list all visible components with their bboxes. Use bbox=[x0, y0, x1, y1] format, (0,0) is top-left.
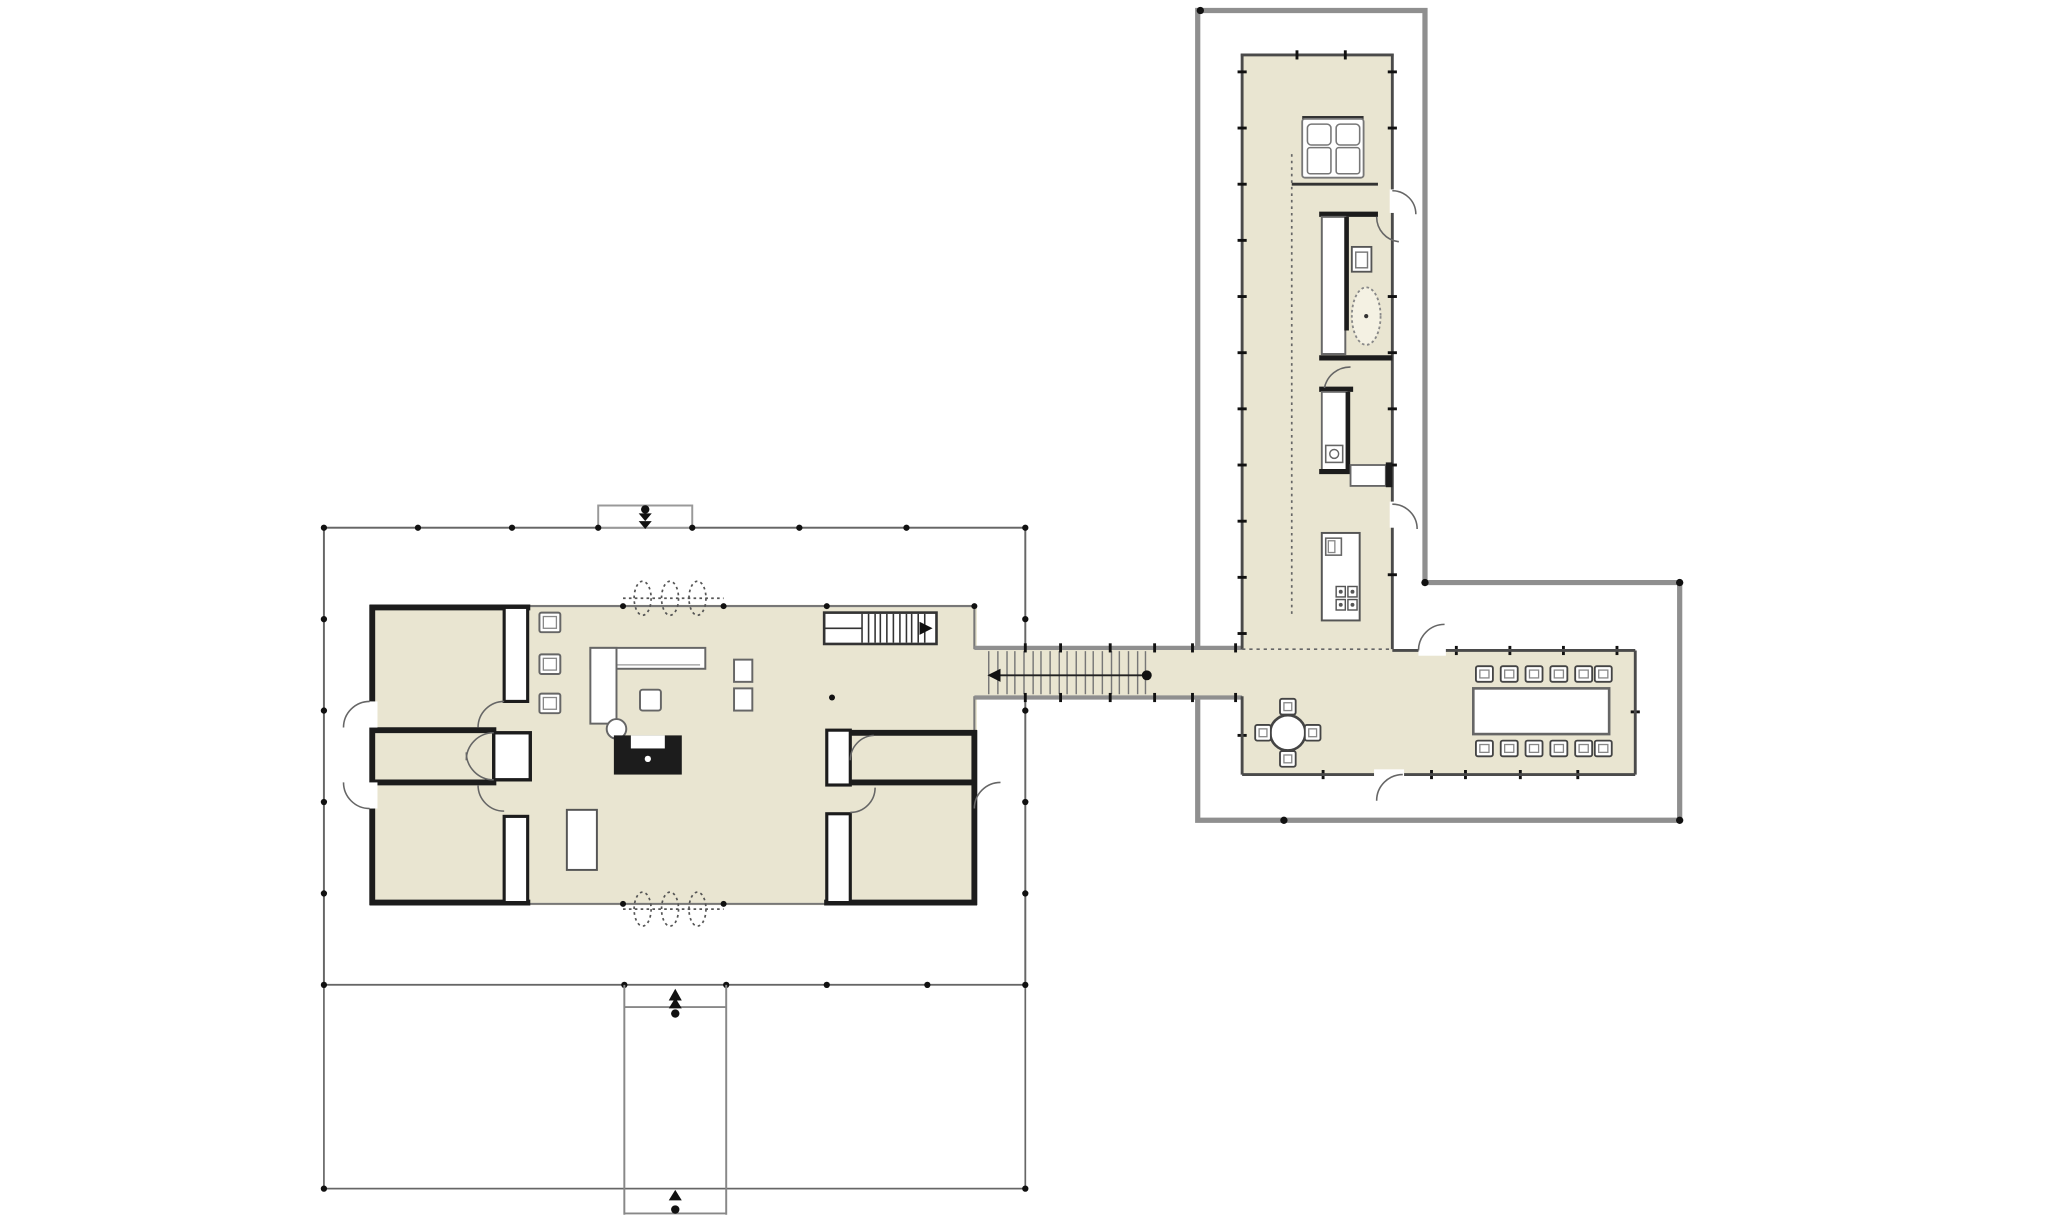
barwing-wall-ticks-v-tick bbox=[1388, 407, 1397, 410]
barwing-wall-ticks-v-tick bbox=[1388, 573, 1397, 576]
burner-dots-dot bbox=[1351, 603, 1355, 607]
door-gap-west-south bbox=[366, 782, 378, 808]
entry-dot-north bbox=[641, 505, 649, 513]
sofa-side-table bbox=[640, 690, 661, 711]
barwing-wall-ticks-v-tick bbox=[1388, 127, 1397, 130]
west-wall-seats-seat-inner bbox=[543, 698, 556, 710]
dining-chairs-north-seat-inner bbox=[1579, 670, 1588, 678]
deck-column-dots-dot bbox=[321, 890, 327, 896]
closet-strip-nw bbox=[504, 607, 528, 701]
glass-column-dots-dot bbox=[824, 603, 830, 609]
barwing-wall-ticks-v-tick bbox=[1238, 127, 1247, 130]
west-wall-seats-seat-inner bbox=[543, 658, 556, 670]
bridge-rail-ticks-tick bbox=[1109, 693, 1112, 702]
glass-column-dots-dot bbox=[620, 603, 626, 609]
deck-column-dots-dot bbox=[796, 525, 802, 531]
barwing-wall-ticks-v-tick bbox=[1238, 407, 1247, 410]
deck-column-dots-dot bbox=[1022, 799, 1028, 805]
walkway-arrow-bottom-icon bbox=[669, 1190, 682, 1200]
deck-column-dots-dot bbox=[1022, 707, 1028, 713]
barwing-wall-ticks-v-tick bbox=[1238, 183, 1247, 186]
door-gap-west-north bbox=[366, 701, 378, 727]
bridge-rail-ticks-tick bbox=[1191, 693, 1194, 702]
bridge-rail-ticks-tick bbox=[1109, 643, 1112, 652]
vestibule-block bbox=[494, 733, 531, 780]
deck-column-dots-dot bbox=[903, 525, 909, 531]
breakfast-chairs-seat-inner bbox=[1284, 703, 1292, 711]
dining-chairs-south-seat-inner bbox=[1505, 745, 1514, 753]
bathtub-drain bbox=[1364, 314, 1368, 318]
deck-column-dots-dot bbox=[321, 707, 327, 713]
door-gap-kitchen-hall bbox=[1390, 502, 1397, 528]
barwing-wall-ticks-v-tick bbox=[1388, 295, 1397, 298]
deck-column-dots-dot bbox=[1022, 616, 1028, 622]
deck-column-dots-dot bbox=[1022, 1185, 1028, 1191]
glass-column-dots-dot bbox=[971, 603, 977, 609]
garden-wall-dots-dot bbox=[1676, 579, 1683, 586]
west-wall-seats-seat-inner bbox=[543, 617, 556, 629]
glass-column-dots-dot bbox=[829, 695, 835, 701]
dining-chairs-north-seat-inner bbox=[1529, 670, 1538, 678]
barwing-wall-ticks-v-tick bbox=[1238, 632, 1247, 635]
deck-column-dots-dot bbox=[1022, 890, 1028, 896]
bridge-rail-ticks-tick bbox=[1153, 643, 1156, 652]
barwing-wall-ticks-v-tick bbox=[1238, 520, 1247, 523]
dining-table bbox=[1473, 688, 1609, 734]
floor-plan-page bbox=[0, 0, 2048, 1220]
deck-column-dots-dot bbox=[689, 525, 695, 531]
sofa-chaise bbox=[590, 648, 616, 724]
barwing-wall-ticks-v-tick bbox=[1238, 70, 1247, 73]
breakfast-table bbox=[1270, 715, 1305, 750]
laundry-counter bbox=[1351, 465, 1386, 486]
bridge-rail-ticks-tick bbox=[1059, 643, 1062, 652]
garden-wall-dots-dot bbox=[1280, 817, 1287, 824]
bridge-rail-ticks-tick bbox=[1153, 693, 1156, 702]
garden-wall-dots-dot bbox=[1421, 579, 1428, 586]
dining-chairs-south-seat-inner bbox=[1579, 745, 1588, 753]
deck-column-dots-dot bbox=[321, 616, 327, 622]
dining-chairs-north-seat-inner bbox=[1480, 670, 1489, 678]
burner-dots-dot bbox=[1339, 590, 1343, 594]
garden-wall-dots-dot bbox=[1676, 817, 1683, 824]
bed-pillow-right bbox=[1336, 124, 1360, 145]
fireplace-hearth bbox=[631, 735, 665, 748]
bridge-rail-ticks-tick bbox=[1024, 643, 1027, 652]
bridge-start-dot bbox=[1142, 670, 1152, 680]
burner-dots-dot bbox=[1339, 603, 1343, 607]
bed-duvet-right bbox=[1336, 148, 1360, 174]
door-gap-bedroom-hall bbox=[1390, 189, 1397, 213]
door-gap-courtyard bbox=[1418, 645, 1445, 655]
toilet-seat bbox=[1356, 252, 1368, 268]
dining-chairs-south-seat-inner bbox=[1529, 745, 1538, 753]
bridge-rail-ticks-tick bbox=[1059, 693, 1062, 702]
dining-chairs-north-seat-inner bbox=[1599, 670, 1608, 678]
bridge-rail-ticks-tick bbox=[1024, 693, 1027, 702]
deck-column-dots-dot bbox=[824, 982, 830, 988]
barwing-wall-ticks-v-tick bbox=[1388, 351, 1397, 354]
barwing-wall-ticks-v-tick bbox=[1238, 576, 1247, 579]
walkway-dot-top bbox=[671, 1009, 679, 1017]
barwing-wall-ticks-h-tick bbox=[1344, 50, 1347, 59]
deck-column-dots-dot bbox=[1022, 525, 1028, 531]
sideboard bbox=[567, 810, 597, 870]
dining-chairs-south-seat-inner bbox=[1599, 745, 1608, 753]
barwing-wall-ticks-v-tick bbox=[1388, 70, 1397, 73]
floor-plan-drawing bbox=[0, 0, 2048, 1220]
laundry-counter-cap bbox=[1386, 462, 1393, 487]
breakfast-chairs-seat-inner bbox=[1284, 755, 1292, 763]
bridge-rail-ticks-tick bbox=[1191, 643, 1194, 652]
bridge-rail-ticks-tick bbox=[1234, 693, 1237, 702]
fireplace-dot bbox=[645, 756, 651, 762]
garden-wall-dots-dot bbox=[1197, 7, 1204, 14]
dining-chairs-north-seat-inner bbox=[1505, 670, 1514, 678]
deck-column-dots-dot bbox=[1022, 982, 1028, 988]
bed-pillow-left bbox=[1307, 124, 1331, 145]
dining-chairs-south-seat-inner bbox=[1480, 745, 1489, 753]
barwing-wall-ticks-v-tick bbox=[1238, 464, 1247, 467]
deck-column-dots-dot bbox=[321, 1185, 327, 1191]
barwing-wall-ticks-v-tick bbox=[1238, 239, 1247, 242]
closet-strip-sw bbox=[504, 816, 528, 902]
deck-column-dots-dot bbox=[321, 982, 327, 988]
closet-strip-ne bbox=[827, 730, 851, 785]
deck-column-dots-dot bbox=[509, 525, 515, 531]
barwing-wall-ticks-v-tick bbox=[1238, 351, 1247, 354]
walkway-dot-bottom bbox=[671, 1205, 679, 1213]
barwing-wall-ticks-h-tick bbox=[1296, 50, 1299, 59]
lounge-table-1 bbox=[734, 660, 752, 682]
closet-strip-se bbox=[827, 814, 851, 903]
breakfast-chairs-seat-inner bbox=[1259, 729, 1267, 737]
lounge-table-2 bbox=[734, 688, 752, 710]
deck-column-dots-dot bbox=[321, 525, 327, 531]
west-wall-seats bbox=[539, 613, 560, 714]
barwing-wall-ticks-v-tick bbox=[1238, 295, 1247, 298]
dining-chairs-south-seat-inner bbox=[1554, 745, 1563, 753]
deck-column-dots-dot bbox=[595, 525, 601, 531]
bed-duvet-left bbox=[1307, 148, 1331, 174]
bridge-rail-ticks-tick bbox=[1234, 643, 1237, 652]
glass-column-dots-dot bbox=[721, 901, 727, 907]
washer bbox=[1326, 445, 1343, 462]
deck-column-dots-dot bbox=[924, 982, 930, 988]
kitchen-sink-basin bbox=[1328, 541, 1335, 553]
burner-dots-dot bbox=[1351, 590, 1355, 594]
breakfast-chairs-seat-inner bbox=[1309, 729, 1317, 737]
glass-column-dots-dot bbox=[620, 901, 626, 907]
glass-column-dots-dot bbox=[721, 603, 727, 609]
deck-column-dots-dot bbox=[415, 525, 421, 531]
bath-vanity bbox=[1322, 217, 1346, 354]
dining-chairs-north-seat-inner bbox=[1554, 670, 1563, 678]
deck-column-dots-dot bbox=[321, 799, 327, 805]
